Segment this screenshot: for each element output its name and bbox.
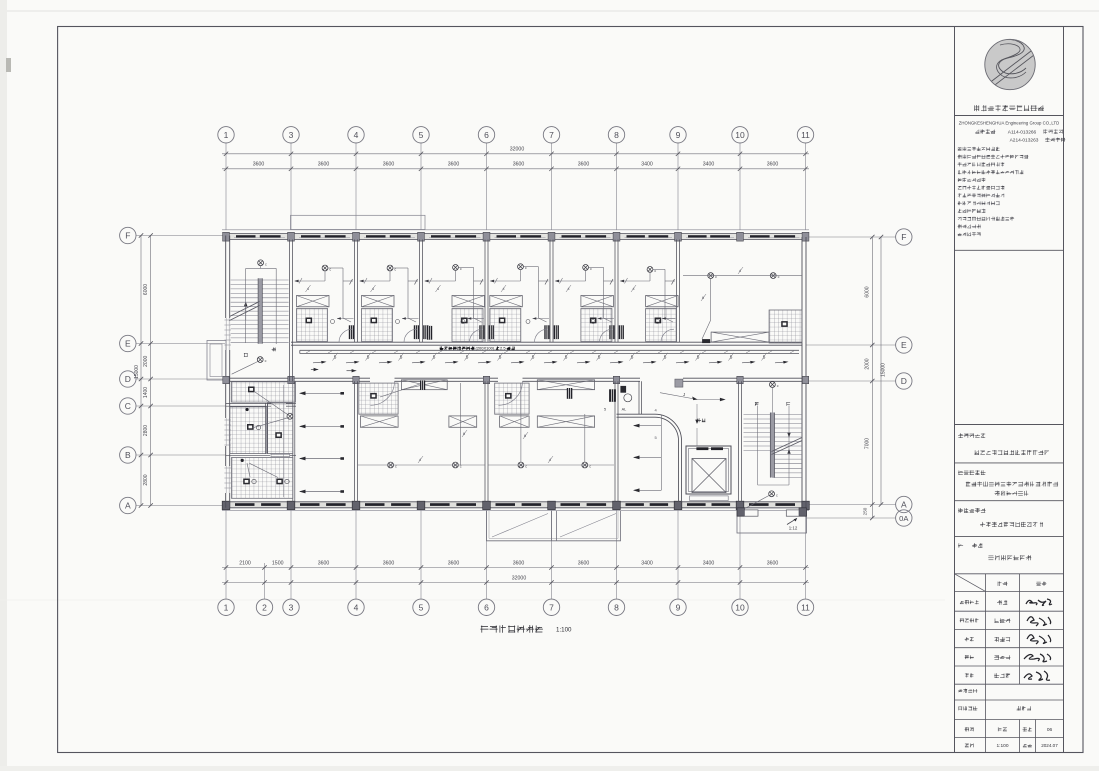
svg-text:C: C (125, 401, 131, 411)
svg-text:1: 1 (224, 602, 229, 612)
svg-text:32000: 32000 (512, 576, 527, 582)
svg-text:3400: 3400 (641, 162, 653, 168)
svg-text:9: 9 (676, 602, 681, 612)
svg-text:06: 06 (1047, 727, 1053, 733)
svg-text:3600: 3600 (578, 560, 590, 566)
svg-text:3600: 3600 (318, 560, 330, 566)
svg-text:3400: 3400 (703, 560, 715, 566)
svg-text:3600: 3600 (253, 162, 265, 168)
svg-text:6000: 6000 (865, 286, 871, 297)
svg-text:1400: 1400 (143, 387, 149, 398)
svg-text:c: c (265, 359, 267, 363)
svg-text:2024.07: 2024.07 (1041, 743, 1058, 748)
svg-text:1:12: 1:12 (789, 526, 798, 531)
svg-text:11: 11 (801, 602, 810, 612)
svg-text:3600: 3600 (318, 162, 330, 168)
svg-text:11: 11 (801, 130, 810, 140)
svg-text:ZHONGKESHENGHUA Engineering Gr: ZHONGKESHENGHUA Engineering Group CO.,LT… (959, 121, 1059, 126)
svg-text:D: D (125, 374, 131, 384)
svg-text:2.5: 2.5 (500, 346, 506, 351)
svg-text:250: 250 (863, 507, 868, 515)
svg-text:6000: 6000 (143, 284, 149, 295)
svg-text:3600: 3600 (448, 560, 460, 566)
svg-text:A214-013263: A214-013263 (1010, 138, 1039, 144)
svg-text:2800: 2800 (143, 474, 149, 485)
svg-text:2800: 2800 (143, 425, 149, 436)
svg-text:7: 7 (549, 130, 554, 140)
svg-text:8: 8 (614, 602, 619, 612)
svg-text:6: 6 (484, 130, 489, 140)
svg-text:3600: 3600 (767, 162, 779, 168)
svg-text:6: 6 (484, 602, 489, 612)
svg-text:10: 10 (735, 130, 745, 140)
svg-text:B: B (125, 450, 131, 460)
svg-text:2100: 2100 (239, 560, 251, 566)
svg-text:D: D (901, 376, 907, 386)
svg-text:A: A (901, 500, 907, 510)
svg-text:15000: 15000 (134, 365, 140, 379)
svg-text:2000: 2000 (865, 358, 871, 369)
svg-text:A: A (125, 501, 131, 511)
svg-text:4: 4 (354, 130, 359, 140)
svg-text:F: F (901, 232, 906, 242)
svg-text:AL: AL (622, 407, 627, 411)
svg-text:(200X100).: (200X100). (476, 346, 496, 351)
svg-text:15000: 15000 (881, 363, 887, 377)
svg-text:A114-013266: A114-013266 (1008, 129, 1037, 135)
svg-text:c: c (776, 493, 778, 497)
svg-text:8: 8 (614, 130, 619, 140)
svg-text:1500: 1500 (272, 560, 284, 566)
svg-text:9: 9 (676, 130, 681, 140)
svg-text:5: 5 (604, 407, 606, 411)
svg-text:0A: 0A (899, 514, 909, 523)
svg-text:3600: 3600 (383, 162, 395, 168)
svg-text:3600: 3600 (513, 162, 525, 168)
svg-text:10: 10 (735, 602, 745, 612)
svg-text:5: 5 (419, 602, 424, 612)
svg-text:2000: 2000 (143, 356, 149, 367)
svg-text:E: E (125, 339, 131, 349)
svg-text:1:100: 1:100 (996, 743, 1008, 749)
svg-text:E: E (901, 340, 907, 350)
svg-text:3600: 3600 (578, 162, 590, 168)
svg-text:1:100: 1:100 (556, 627, 572, 634)
svg-text:3400: 3400 (641, 560, 653, 566)
svg-text:1: 1 (224, 130, 229, 140)
svg-text:4: 4 (354, 602, 359, 612)
svg-text:J: J (683, 392, 685, 397)
svg-text:F: F (125, 231, 130, 241)
svg-text:7000: 7000 (865, 438, 871, 449)
svg-text:3600: 3600 (448, 162, 460, 168)
svg-text:3600: 3600 (767, 560, 779, 566)
svg-text:32000: 32000 (510, 147, 525, 153)
svg-text:3600: 3600 (513, 560, 525, 566)
svg-text:5: 5 (419, 130, 424, 140)
svg-text:7: 7 (549, 602, 554, 612)
svg-text:c: c (777, 384, 779, 388)
svg-text:3: 3 (289, 130, 294, 140)
svg-text:3600: 3600 (383, 560, 395, 566)
svg-text:c: c (265, 262, 267, 266)
svg-text:3400: 3400 (703, 162, 715, 168)
svg-text:3: 3 (289, 602, 294, 612)
svg-text:2: 2 (262, 602, 267, 612)
